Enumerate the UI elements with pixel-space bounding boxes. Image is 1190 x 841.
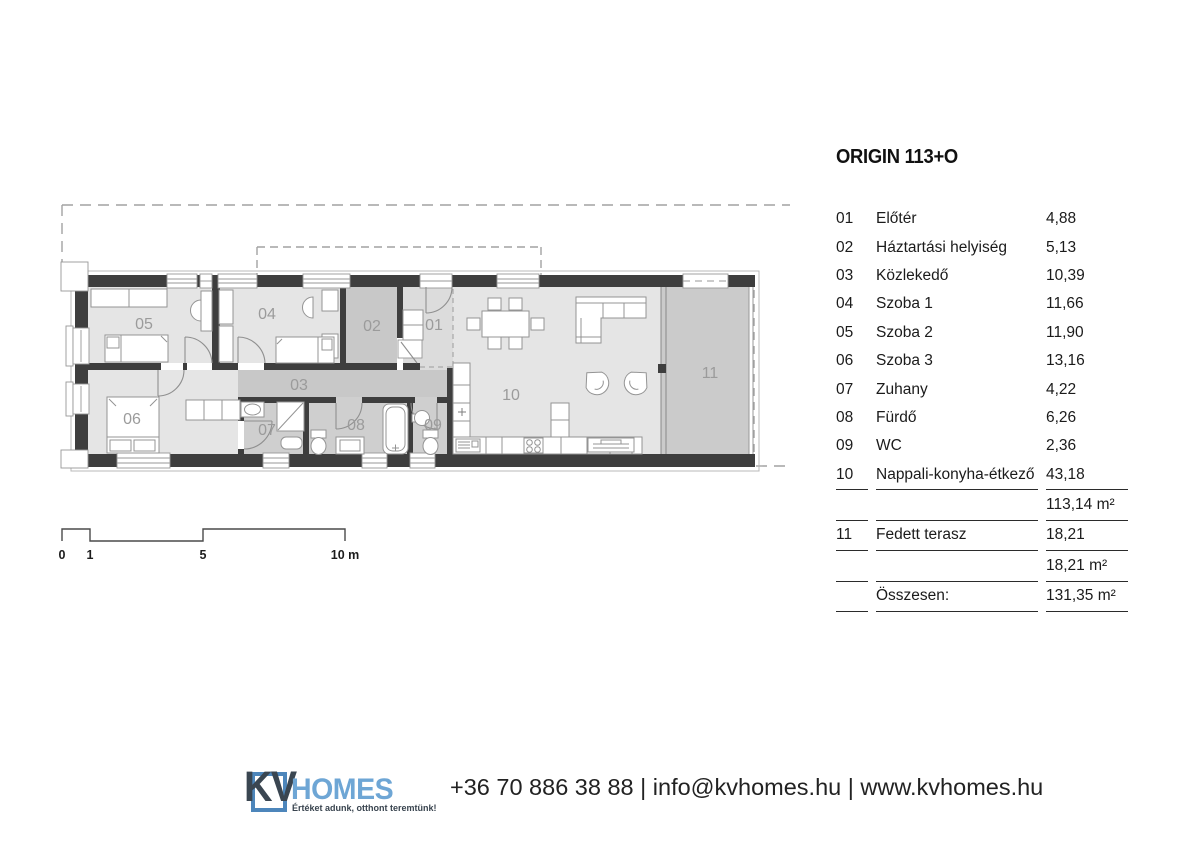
closet-06-icon	[186, 400, 240, 420]
row-name: Szoba 3	[876, 352, 1046, 370]
bed-04-icon	[276, 337, 334, 363]
contact-line: +36 70 886 38 88 | info@kvhomes.hu | www…	[450, 774, 1043, 801]
toilet-07-icon	[281, 437, 302, 449]
room-label-11: 11	[702, 365, 719, 382]
window-bottom-08	[362, 453, 387, 468]
room-label-04: 04	[258, 306, 276, 323]
window-left-05	[66, 326, 89, 366]
logo-homes-text: HOMES	[291, 775, 393, 805]
row-name: Zuhany	[876, 381, 1046, 399]
table-row: 09WC2,36	[836, 432, 1128, 460]
row-area: 11,90	[1046, 324, 1128, 342]
total-row: Összesen:131,35 m²	[836, 582, 1128, 610]
sink-07-icon	[241, 402, 264, 417]
subtotal-row-terrace: 18,21 m²	[836, 552, 1128, 580]
row-name: Nappali-konyha-étkező	[876, 466, 1046, 484]
table-row-terrace: 11Fedett terasz18,21	[836, 521, 1128, 549]
contact-phone: +36 70 886 38 88	[450, 774, 634, 800]
row-area: 43,18	[1046, 466, 1128, 484]
kitchen-cabinets-icon	[453, 363, 470, 437]
row-area: 10,39	[1046, 267, 1128, 285]
floorplan-sheet: 05 04 02 01 03 06 07 08 09 10 11 0 1 5 1…	[0, 0, 1190, 841]
room-label-02: 02	[363, 318, 381, 335]
row-number: 01	[836, 210, 876, 228]
row-area: 5,13	[1046, 239, 1128, 257]
total-label: Összesen:	[876, 587, 1046, 605]
row-area: 11,66	[1046, 295, 1128, 313]
contact-email: info@kvhomes.hu	[653, 774, 841, 800]
row-area: 18,21	[1046, 526, 1128, 544]
row-area: 13,16	[1046, 352, 1128, 370]
row-number: 03	[836, 267, 876, 285]
total-value: 131,35 m²	[1046, 587, 1128, 605]
scale-bar: 0 1 5 10 m	[59, 529, 360, 562]
row-name: Közlekedő	[876, 267, 1046, 285]
table-row: 04Szoba 111,66	[836, 290, 1128, 318]
scale-label-5: 5	[200, 548, 207, 562]
plan-title: ORIGIN 113+O	[836, 146, 958, 169]
row-number: 11	[836, 526, 876, 544]
corner-box-top-left	[61, 262, 88, 291]
window-bottom-06	[117, 453, 170, 468]
table-row: 06Szoba 313,16	[836, 347, 1128, 375]
scale-label-0: 0	[59, 548, 66, 562]
window-bottom-07	[263, 453, 289, 468]
row-number: 06	[836, 352, 876, 370]
window-top-05	[167, 274, 197, 288]
corner-box-bottom-left	[61, 450, 88, 468]
logo-kv-text: KV	[244, 766, 295, 809]
window-top-10	[497, 274, 539, 288]
room-label-05: 05	[135, 316, 153, 333]
row-area: 4,22	[1046, 381, 1128, 399]
entry-door-gap	[420, 274, 452, 288]
row-area: 2,36	[1046, 437, 1128, 455]
dishwasher-icon	[456, 439, 480, 452]
row-name: WC	[876, 437, 1046, 455]
room-label-09: 09	[424, 417, 442, 434]
logo-tagline: Értéket adunk, otthont teremtünk!	[292, 803, 437, 813]
room-label-10: 10	[502, 387, 520, 404]
washer-08-icon	[336, 437, 364, 454]
row-area: 6,26	[1046, 409, 1128, 427]
table-row: 10Nappali-konyha-étkező43,18	[836, 461, 1128, 489]
window-left-06	[66, 382, 89, 416]
table-row: 02Háztartási helyiség5,13	[836, 233, 1128, 261]
table-divider	[836, 610, 1128, 612]
bathtub-08-icon	[383, 404, 408, 454]
room-label-07: 07	[258, 422, 276, 439]
window-bottom-09	[410, 453, 435, 468]
toilet-08-icon	[311, 430, 326, 455]
main-subtotal-value: 113,14 m²	[1046, 496, 1128, 514]
sideboard-icon	[588, 438, 634, 452]
window-top-05b	[200, 274, 212, 288]
row-number: 09	[836, 437, 876, 455]
scale-label-10: 10 m	[331, 548, 360, 562]
kv-homes-logo: KV HOMES Értéket adunk, otthont teremtün…	[244, 762, 444, 816]
room-legend-table: 01Előtér4,88 02Háztartási helyiség5,13 0…	[836, 205, 1128, 612]
row-name: Előtér	[876, 210, 1046, 228]
window-top-04b	[303, 274, 350, 288]
window-top-04a	[218, 274, 257, 288]
row-number: 05	[836, 324, 876, 342]
row-number: 07	[836, 381, 876, 399]
contact-website: www.kvhomes.hu	[860, 774, 1043, 800]
row-number: 08	[836, 409, 876, 427]
table-row: 05Szoba 211,90	[836, 319, 1128, 347]
kitchen-island-icon	[551, 403, 569, 437]
shower-07-icon	[277, 402, 304, 431]
closet-01-icon	[403, 310, 423, 340]
stove-icon	[524, 438, 543, 453]
room-label-01: 01	[425, 317, 443, 334]
row-name: Szoba 1	[876, 295, 1046, 313]
terrace-roof-opening	[683, 274, 728, 288]
row-name: Fedett terasz	[876, 526, 1046, 544]
wardrobe-05-icon	[91, 289, 167, 307]
row-name: Szoba 2	[876, 324, 1046, 342]
row-number: 10	[836, 466, 876, 484]
bed-05-icon	[105, 335, 168, 362]
room-label-06: 06	[123, 411, 141, 428]
row-number: 04	[836, 295, 876, 313]
table-row: 03Közlekedő10,39	[836, 262, 1128, 290]
table-row: 07Zuhany4,22	[836, 375, 1128, 403]
contact-separator: |	[640, 774, 646, 800]
scale-label-1: 1	[87, 548, 94, 562]
row-number: 02	[836, 239, 876, 257]
room-label-08: 08	[347, 417, 365, 434]
row-area: 4,88	[1046, 210, 1128, 228]
contact-separator: |	[848, 774, 854, 800]
row-name: Fürdő	[876, 409, 1046, 427]
room-label-03: 03	[290, 377, 308, 394]
row-name: Háztartási helyiség	[876, 239, 1046, 257]
wardrobe-04-icon	[219, 290, 233, 362]
table-row: 08Fürdő6,26	[836, 404, 1128, 432]
terrace-subtotal-value: 18,21 m²	[1046, 557, 1128, 575]
table-row: 01Előtér4,88	[836, 205, 1128, 233]
subtotal-row-main: 113,14 m²	[836, 491, 1128, 519]
